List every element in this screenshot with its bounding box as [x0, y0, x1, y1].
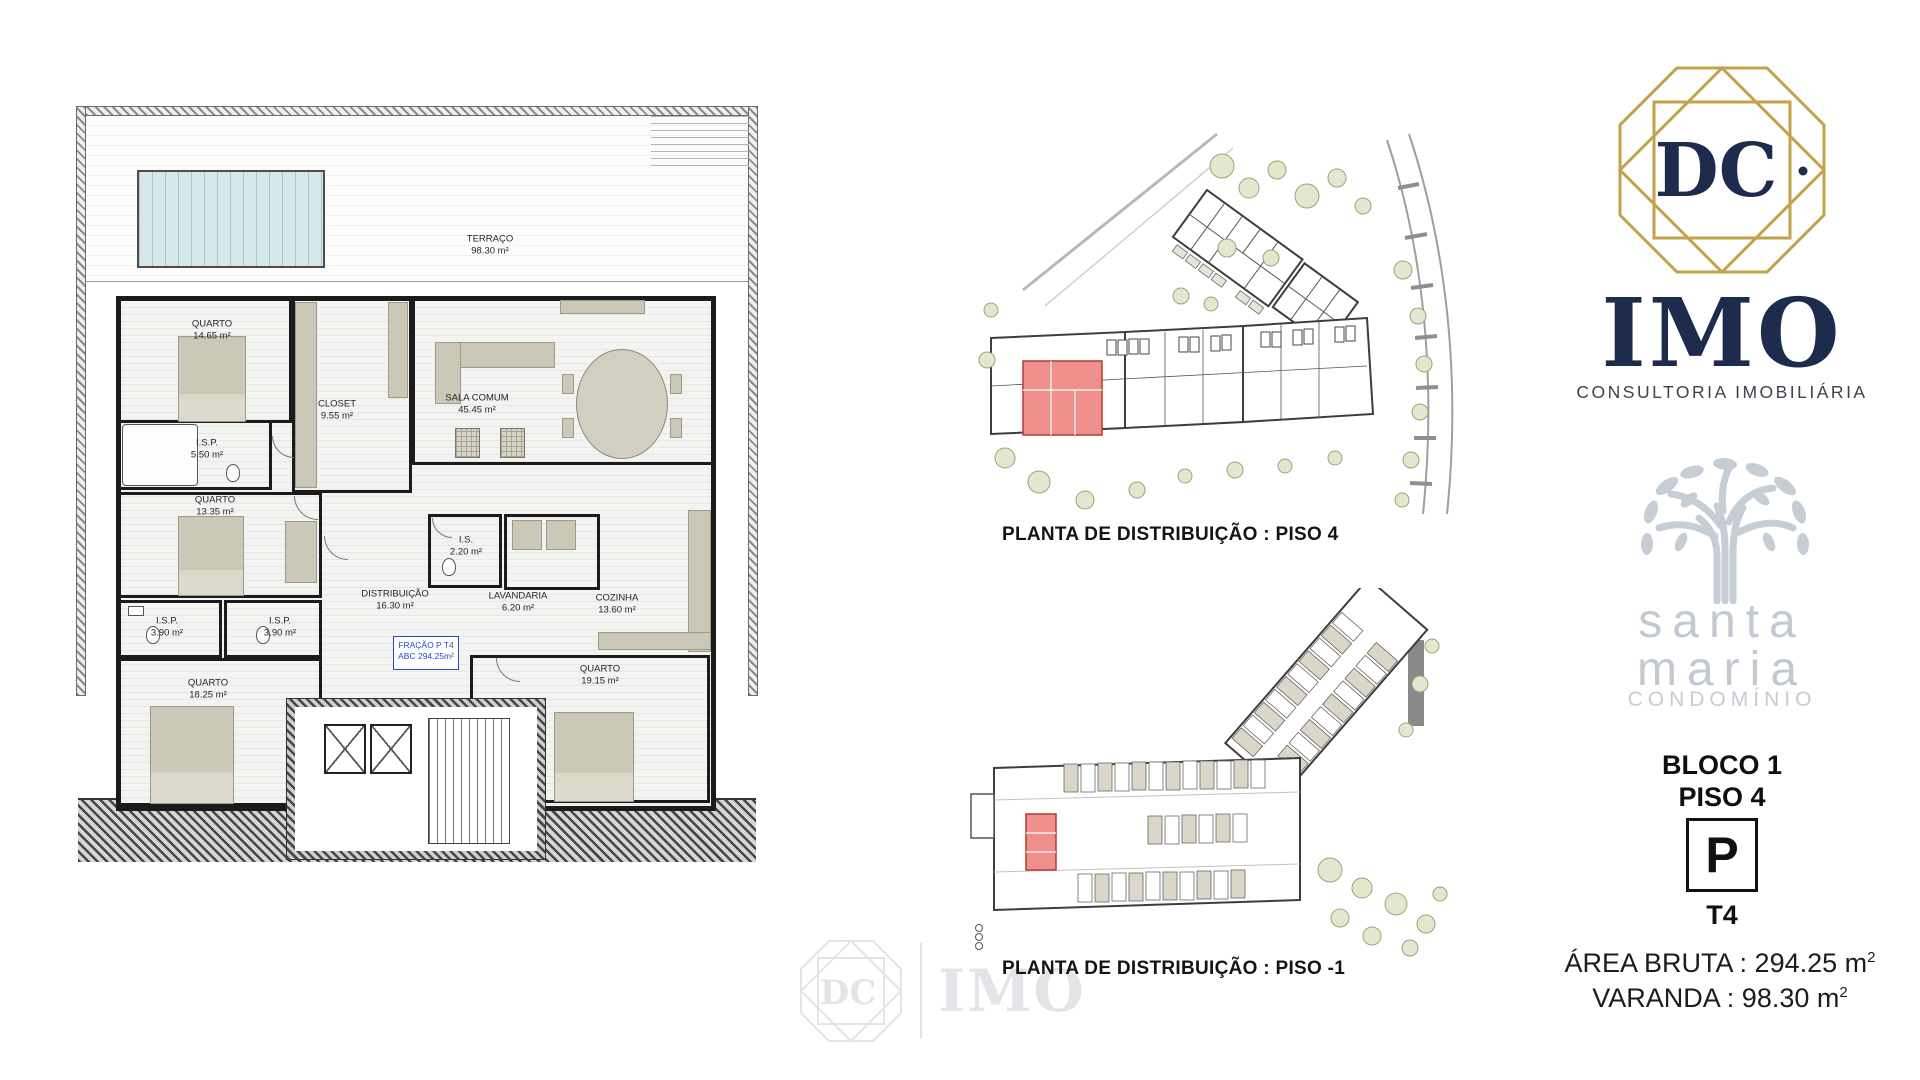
wardrobe: [295, 302, 317, 488]
chair: [670, 374, 682, 394]
bed: [178, 336, 246, 422]
dc-monogram: DC: [1654, 128, 1777, 214]
watermark: DC IMO: [798, 938, 1086, 1044]
imo-wordmark: IMO: [1560, 286, 1884, 381]
kitchen-counter: [598, 632, 711, 650]
room-label-quarto-2: QUARTO13.35 m²: [195, 495, 235, 520]
room-label-quarto-3: QUARTO18.25 m²: [188, 678, 228, 703]
chair: [670, 418, 682, 438]
dining-table: [576, 349, 668, 459]
room-label-terraco: TERRAÇO98.30 m²: [467, 234, 513, 259]
terrace-wall-right: [748, 106, 758, 696]
bed: [554, 712, 634, 802]
fraction-tag: FRAÇÃO P T4ABC 294.25m²: [393, 636, 459, 670]
armchair: [455, 428, 480, 458]
chair: [562, 374, 574, 394]
chair: [562, 418, 574, 438]
parking-symbol: P: [1686, 818, 1758, 892]
terrace-stairs: [651, 116, 749, 166]
room-label-isp-left: I.S.P.3.90 m²: [151, 616, 183, 641]
bed: [178, 516, 244, 596]
room-label-distribuicao: DISTRIBUIÇÃO16.30 m²: [361, 589, 429, 614]
highlighted-unit-piso4: [1023, 361, 1102, 435]
dryer: [546, 520, 576, 550]
gross-area-line: ÁREA BRUTA : 294.25 m2: [1500, 948, 1920, 979]
highlighted-unit-piso-minus1: [1026, 814, 1056, 870]
watermark-divider: [920, 943, 922, 1039]
washer: [512, 520, 542, 550]
wardrobe: [285, 521, 317, 583]
watermark-octagon-logo: DC: [798, 938, 904, 1044]
condo-name-line1: santa: [1560, 598, 1884, 646]
sideboard: [560, 300, 645, 314]
room-label-quarto-4: QUARTO19.15 m²: [580, 664, 620, 689]
caption-piso4: PLANTA DE DISTRIBUIÇÃO : PISO 4: [1002, 524, 1339, 546]
santa-maria-tree-icon: [1637, 456, 1813, 604]
apartment-plan: TERRAÇO98.30 m²: [76, 106, 758, 864]
room-label-quarto-1: QUARTO14.65 m²: [192, 319, 232, 344]
dc-dot: [1799, 167, 1808, 176]
parking-letter: P: [1705, 826, 1738, 884]
stairs: [428, 718, 510, 844]
bed: [150, 706, 234, 804]
bathtub: [122, 424, 198, 486]
wardrobe: [388, 302, 408, 398]
terrace-wall-top: [76, 106, 758, 116]
imo-subtitle: CONSULTORIA IMOBILIÁRIA: [1560, 382, 1884, 403]
kitchen-counter: [688, 510, 711, 652]
caption-piso-minus1: PLANTA DE DISTRIBUIÇÃO : PISO -1: [1002, 958, 1345, 980]
elevator: [370, 724, 412, 774]
site-plan-piso4: [975, 128, 1465, 518]
toilet: [226, 464, 240, 482]
toilet: [442, 558, 456, 576]
site-plan-piso-minus1: [968, 588, 1468, 973]
armchair: [500, 428, 525, 458]
balcony-area-line: VARANDA : 98.30 m2: [1500, 983, 1920, 1014]
terrace-wall-left: [76, 106, 86, 696]
room-label-sala-comum: SALA COMUM45.45 m²: [445, 393, 508, 418]
floorplan-sheet: TERRAÇO98.30 m²: [0, 0, 1920, 1080]
room-label-is: I.S.2.20 m²: [450, 535, 482, 560]
room-label-isp-right: I.S.P.3.90 m²: [264, 616, 296, 641]
watermark-monogram: DC: [820, 973, 877, 1013]
dc-logo: DC: [1614, 62, 1830, 278]
room-label-cozinha: COZINHA13.60 m²: [596, 593, 639, 618]
block-label: BLOCO 1: [1560, 750, 1884, 781]
room-label-lavandaria: LAVANDARIA6.20 m²: [489, 591, 548, 616]
typology-label: T4: [1560, 900, 1884, 931]
floor-label: PISO 4: [1560, 782, 1884, 813]
room-label-isp-1: I.S.P.5.50 m²: [191, 438, 223, 463]
sink: [128, 606, 144, 616]
elevator: [324, 724, 366, 774]
condo-subtitle: CONDOMÍNIO: [1560, 688, 1884, 712]
pool: [137, 170, 325, 268]
room-label-closet: CLOSET9.55 m²: [318, 399, 356, 424]
condo-name-line2: maria: [1560, 646, 1884, 694]
